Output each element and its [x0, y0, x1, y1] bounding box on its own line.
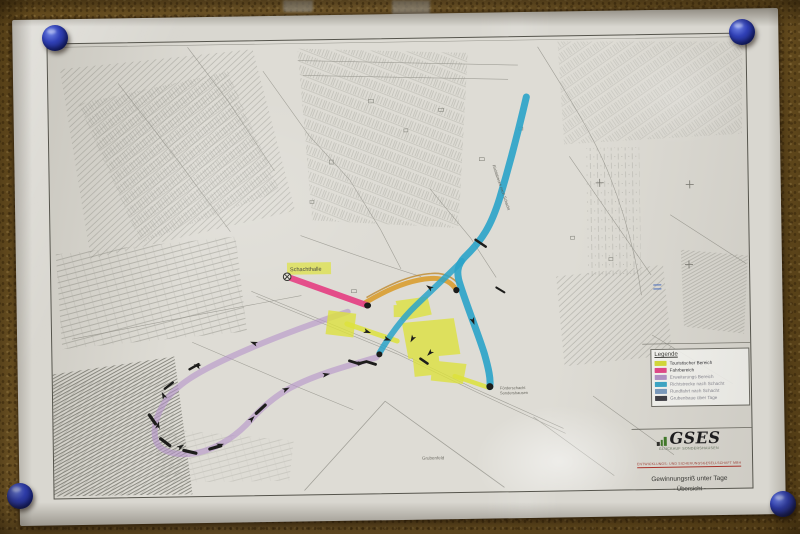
map-subtitle: - Übersicht -: [626, 484, 752, 494]
cork-board: Schachthalle Förderschacht Sondershausen…: [0, 0, 800, 534]
legend-label: Fahrbereich: [670, 367, 695, 373]
gses-logo: GSES: [626, 429, 752, 446]
shaft-label-2: Sondershausen: [500, 390, 528, 395]
legend-label: Rundfahrt nach Schacht: [670, 388, 719, 394]
map-title: Gewinnungsriß unter Tage: [626, 474, 752, 484]
push-pin-bottom-left: [7, 483, 33, 509]
legend-row: Grubenbaue über Tage: [655, 394, 746, 402]
legend-swatch-icon: [655, 396, 667, 401]
title-block: GSES Glückauf Sondershausen Entwicklungs…: [626, 429, 753, 493]
map-sheet: Schachthalle Förderschacht Sondershausen…: [12, 8, 786, 526]
route-pink: [287, 276, 367, 307]
map-print-area: Schachthalle Förderschacht Sondershausen…: [46, 33, 753, 500]
push-pin-top-right: [729, 19, 755, 45]
legend-title: Legende: [654, 351, 745, 359]
legend-swatch-icon: [655, 382, 667, 387]
legend-box: Legende Touristischer Bereich Fahrbereic…: [650, 348, 750, 408]
legend-swatch-icon: [655, 389, 667, 394]
legend-swatch-icon: [655, 375, 667, 380]
legend-label: Erweiterungs Bereich: [670, 374, 714, 380]
push-pin-bottom-right: [770, 491, 796, 517]
company-line2: Entwicklungs- und Sicherungsgesellschaft…: [637, 460, 741, 468]
highlight-label: Schachthalle: [290, 267, 322, 273]
legend-label: Touristischer Bereich: [670, 360, 713, 366]
legend-label: Grubenbaue über Tage: [670, 395, 717, 401]
mine-map: Schachthalle Förderschacht Sondershausen…: [47, 34, 752, 499]
route-cyan-main: [455, 97, 531, 387]
shaft-symbol-icon: [283, 273, 291, 281]
bottom-label: Grubenfeld: [422, 455, 445, 460]
legend-swatch-icon: [655, 361, 667, 366]
gses-logo-icon: [657, 437, 667, 446]
wall-tab-left: [283, 0, 313, 12]
push-pin-top-left: [42, 25, 68, 51]
company-name: GSES: [669, 430, 720, 446]
legend-swatch-icon: [655, 368, 667, 373]
legend-label: Richtstrecke nach Schacht: [670, 381, 725, 387]
